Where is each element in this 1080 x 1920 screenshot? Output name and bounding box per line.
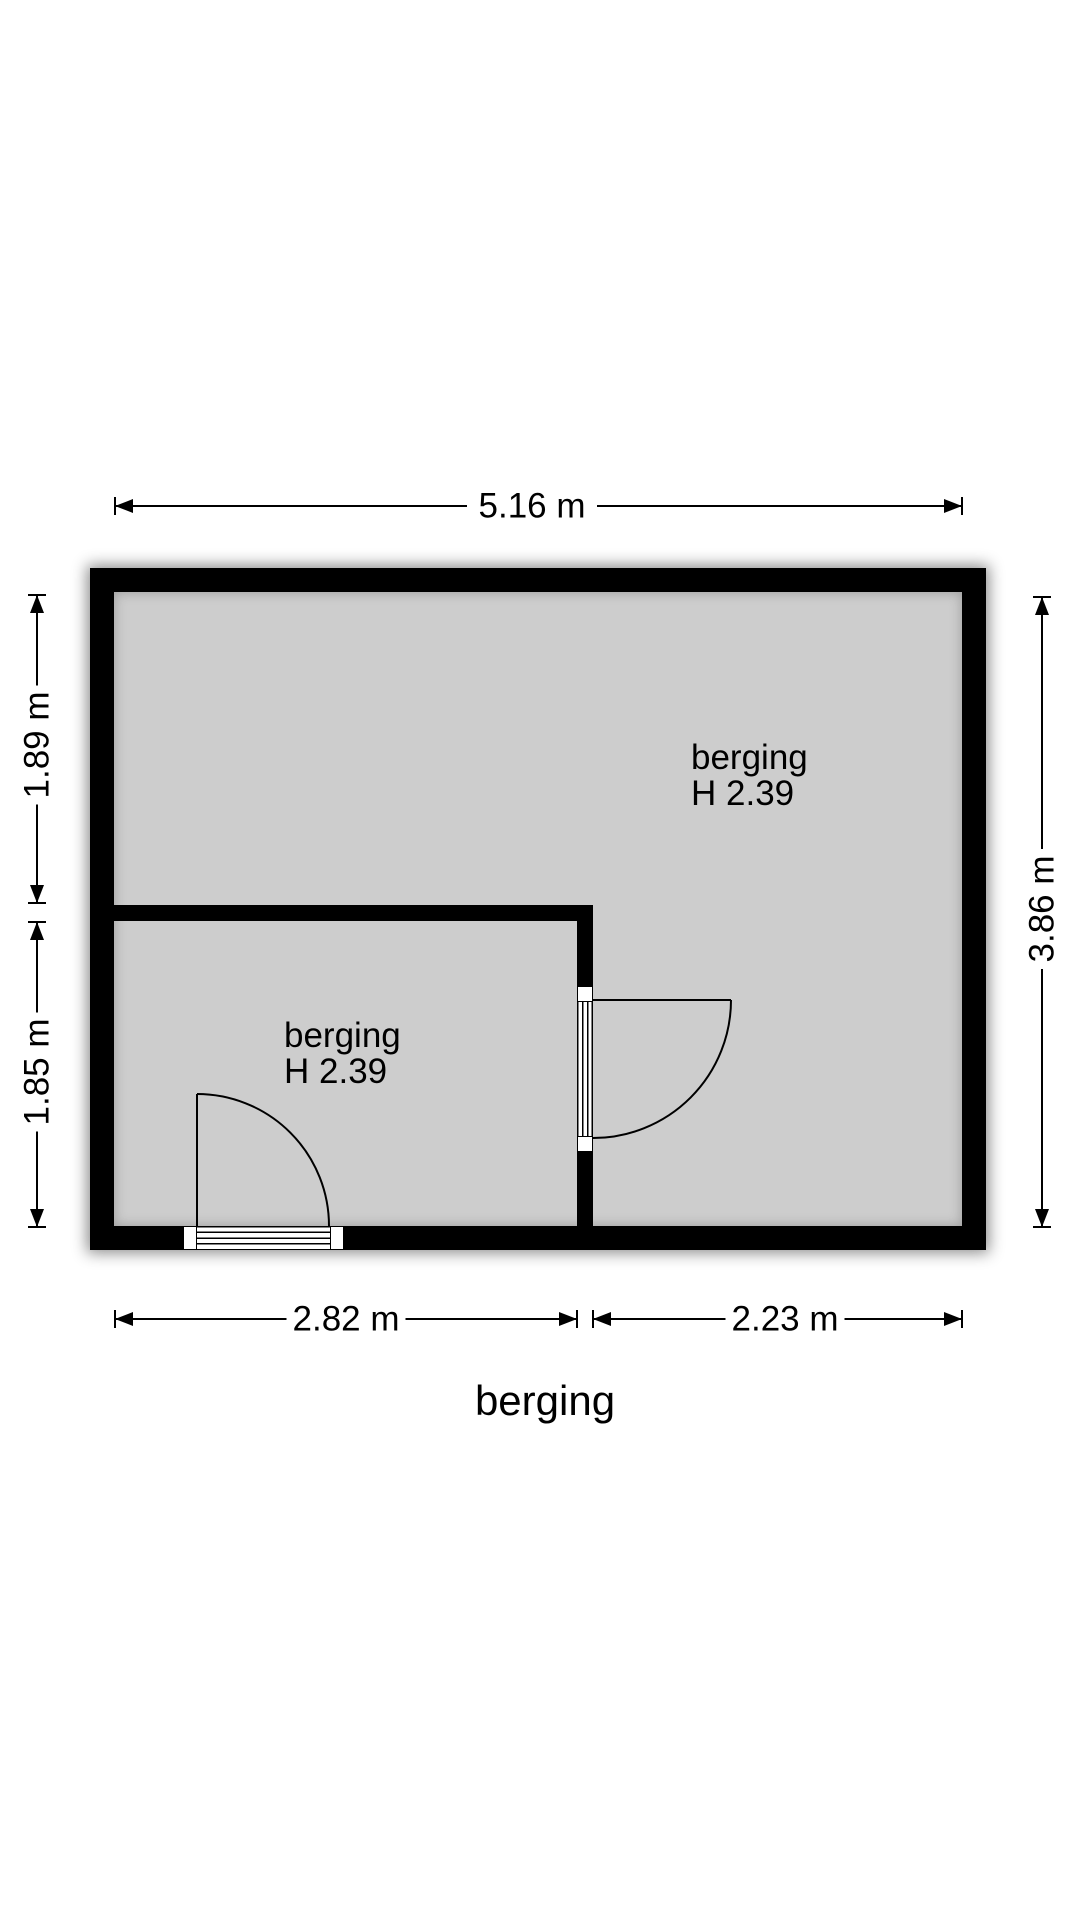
dimension-label-left-upper: 1.89 m [20,686,55,805]
plan-title: berging [475,1378,615,1424]
dimension-label-left-lower: 1.85 m [20,1013,55,1132]
room-label-lower: berging H 2.39 [284,1018,401,1090]
dimension-label-bottom-right: 2.23 m [726,1302,845,1337]
room-height-upper: H 2.39 [691,776,808,812]
room-name-upper: berging [691,740,808,776]
interior-wall-vertical-lower-segment [577,1152,593,1226]
interior-door-stop-top [577,986,593,1002]
exterior-door-stop-left [183,1226,197,1250]
room-name-lower: berging [284,1018,401,1054]
interior-door-threshold [577,1002,593,1136]
dimension-label-bottom-left: 2.82 m [287,1302,406,1337]
room-label-upper: berging H 2.39 [691,740,808,812]
dimension-label-right: 3.86 m [1025,850,1060,969]
room-height-lower: H 2.39 [284,1054,401,1090]
exterior-door-stop-right [330,1226,344,1250]
floorplan-page: 5.16 m 1.89 m 1.85 m 3.86 m 2.82 m 2.23 … [0,0,1080,1920]
dimension-label-top: 5.16 m [473,489,592,524]
interior-door-stop-bottom [577,1136,593,1152]
building-outer-walls [90,568,986,1250]
interior-wall-vertical-upper-segment [577,905,593,986]
exterior-door-threshold [197,1226,330,1250]
interior-wall-horizontal [114,905,593,921]
